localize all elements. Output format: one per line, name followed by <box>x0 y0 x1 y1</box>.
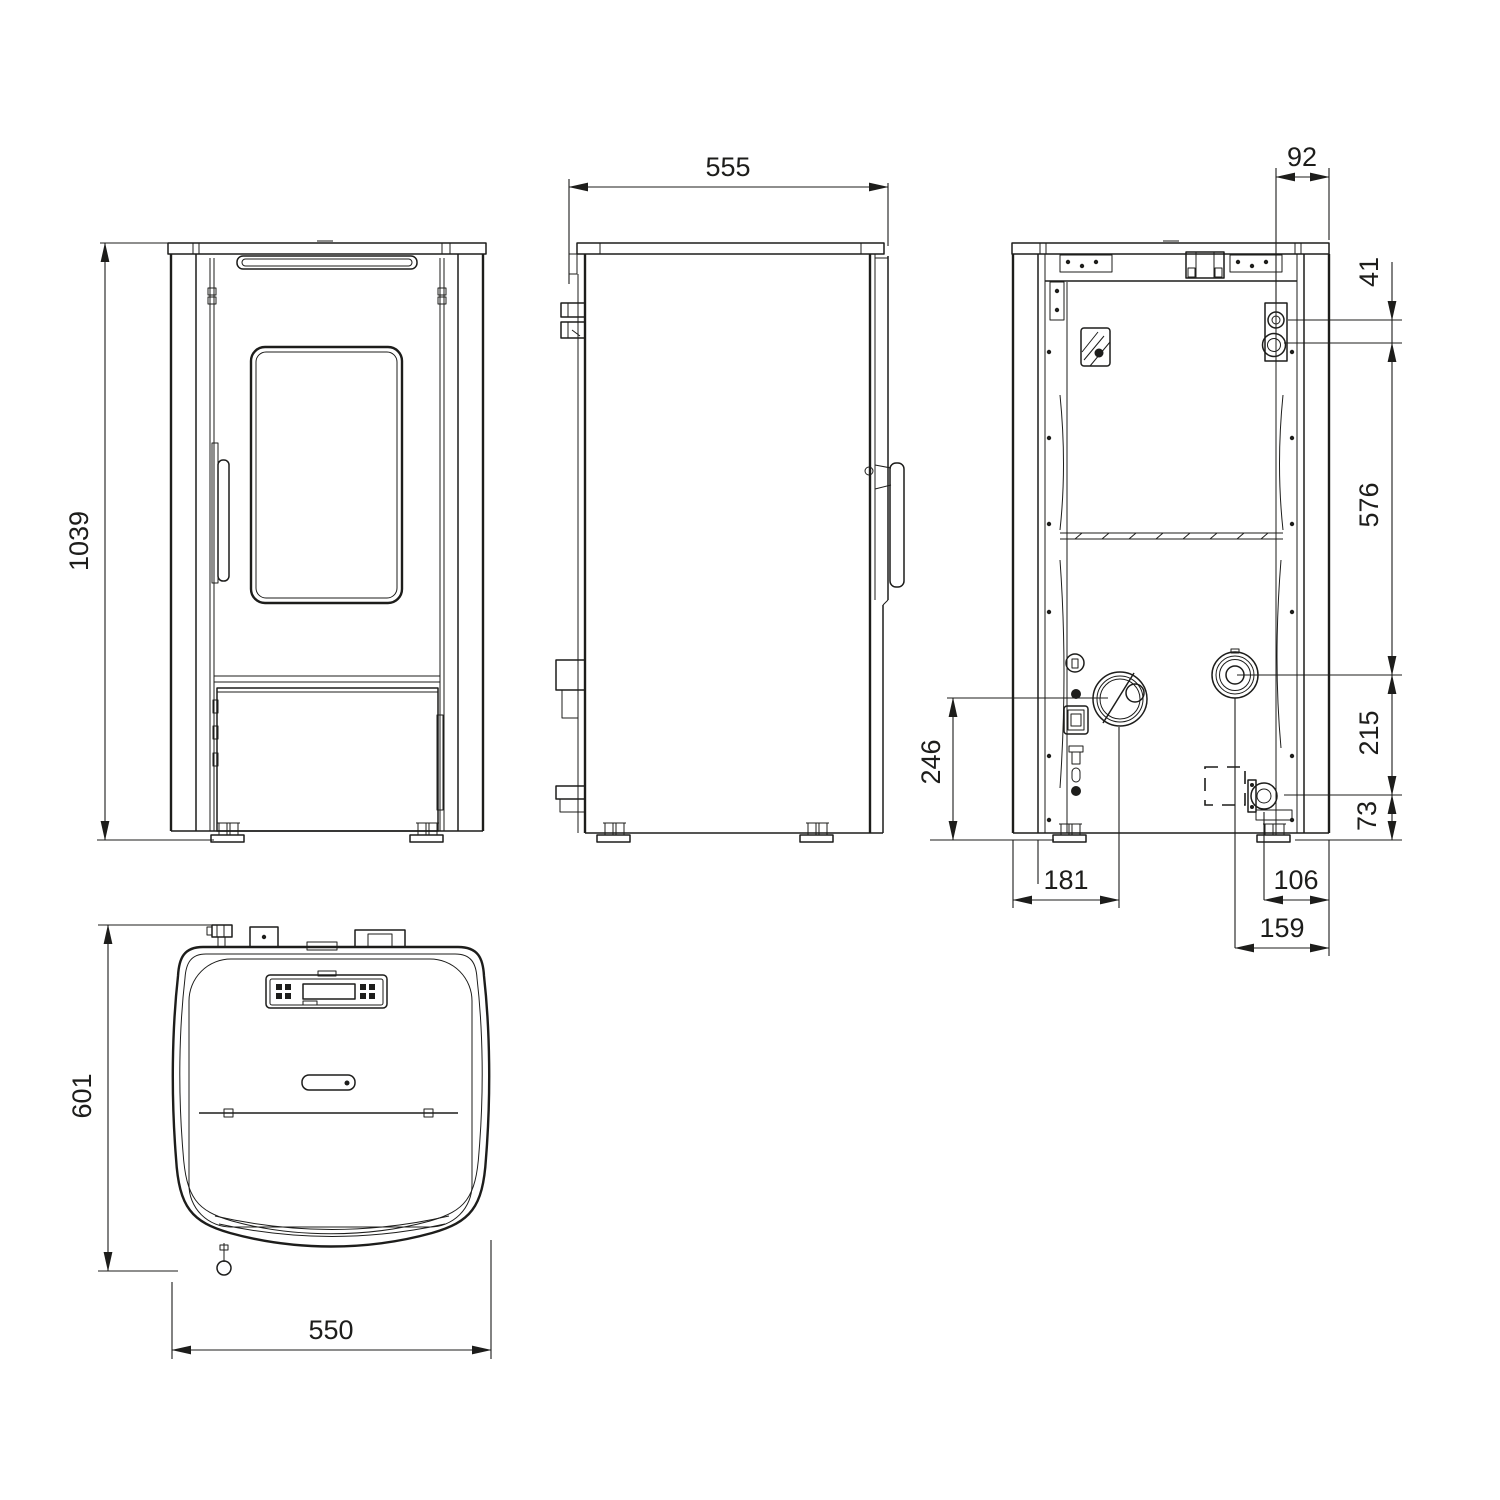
technical-drawing-page: 1039 555 92 41 576 <box>0 0 1500 1500</box>
dim-label-rear-pipe-offset: 92 <box>1287 142 1317 172</box>
dim-label-flue-offset-left: 181 <box>1043 865 1088 895</box>
dim-label-front-height: 1039 <box>64 511 94 571</box>
dim-label-return-offset-right: 159 <box>1259 913 1304 943</box>
dim-label-fitting-spacing: 41 <box>1354 257 1384 287</box>
dim-label-fitting-to-return: 576 <box>1354 482 1384 527</box>
dim-label-depth: 555 <box>705 152 750 182</box>
dim-label-top-depth: 601 <box>67 1073 97 1118</box>
dim-label-flue-center-height: 246 <box>916 739 946 784</box>
dim-label-top-width: 550 <box>308 1315 353 1345</box>
stove-dimension-drawing: 1039 555 92 41 576 <box>0 0 1500 1500</box>
dim-label-drain-to-floor: 73 <box>1352 801 1382 831</box>
dim-label-drain-offset-right: 106 <box>1273 865 1318 895</box>
dim-label-return-to-drain: 215 <box>1354 710 1384 755</box>
